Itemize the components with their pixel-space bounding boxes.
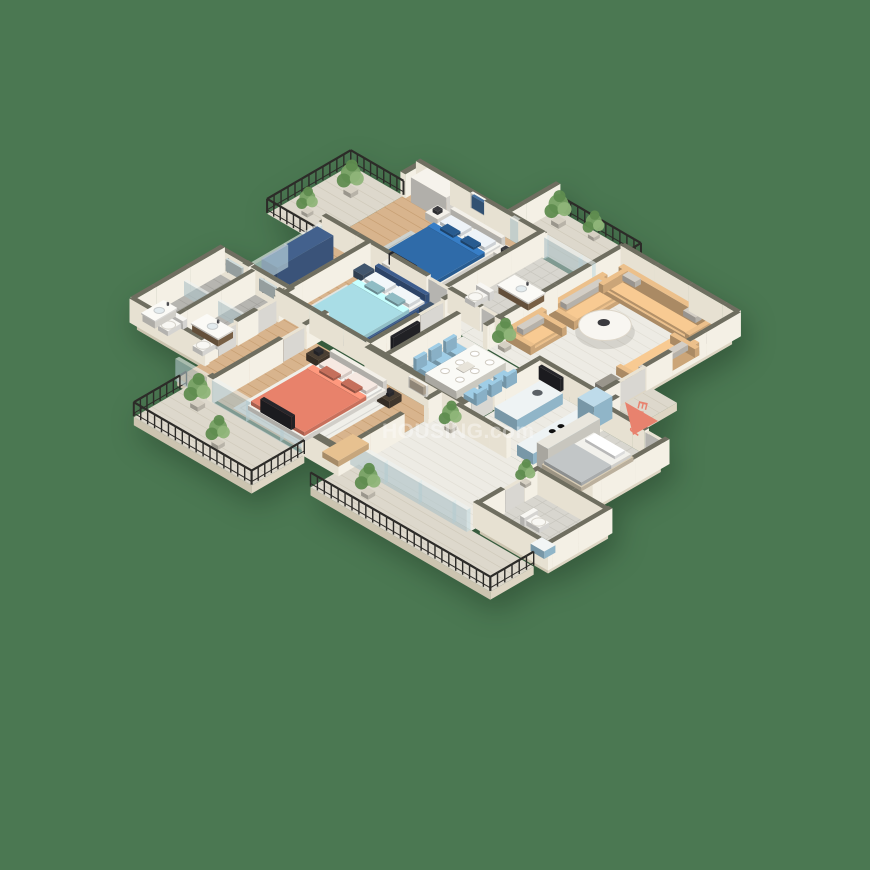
- floorplan-image: HOUSING.com Entry: [0, 0, 870, 870]
- entity: [483, 322, 490, 350]
- coffee-table: [575, 310, 635, 349]
- pot: [532, 390, 543, 396]
- floorplan-svg: [0, 0, 870, 870]
